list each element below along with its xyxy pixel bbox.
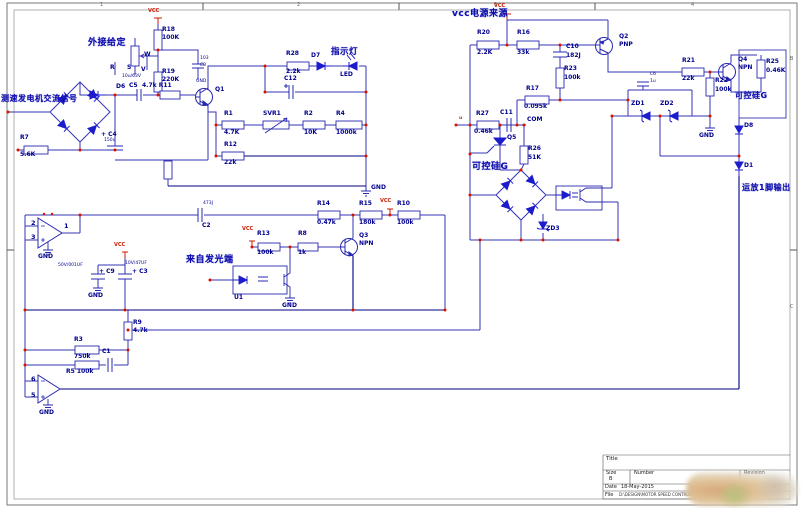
label-vcc-source: vcc电源来源	[452, 10, 508, 19]
ref-q2: Q2	[619, 34, 628, 40]
transistor-q3	[341, 238, 358, 256]
type-q4: NPN	[738, 65, 752, 71]
gnd-label: GND	[39, 410, 54, 416]
ref-r23: R23	[564, 66, 577, 72]
opamp1-pin-noninverting: 3	[31, 234, 36, 241]
val-r25: 0.46K	[766, 68, 785, 74]
titleblock-revision-label: Revision	[744, 471, 765, 476]
ref-d1: D1	[744, 163, 753, 169]
ref-c12: C12	[284, 76, 297, 82]
label-com: COM	[527, 117, 542, 123]
val-r8: 1k	[298, 250, 306, 256]
val-c8: 103	[200, 57, 209, 62]
val-r20: 2.2K	[477, 50, 492, 56]
ref-d7: D7	[311, 53, 320, 59]
ref-c2: C2	[202, 223, 211, 229]
titleblock-date-label: Date	[605, 485, 617, 490]
titleblock-title-label: Title	[606, 457, 618, 463]
diode-d1	[735, 162, 743, 170]
titleblock-file-value: D:\DESIGN\MOTOR SPEED CONTROL.SCH	[619, 493, 701, 497]
cap-c10	[553, 52, 567, 57]
type-q2: PNP	[619, 42, 633, 48]
resistor-r4	[336, 121, 362, 129]
val-r10: 100k	[397, 220, 414, 226]
ref-r5: R5 100k	[66, 369, 93, 375]
titleblock-of-label: of	[772, 485, 777, 490]
label-external-setting: 外接给定	[88, 39, 126, 48]
titleblock-sheet-label: Sheet	[744, 485, 758, 490]
pot-pin-s: S	[127, 65, 131, 71]
val-r16: 33k	[517, 50, 529, 56]
ref-r22: R22	[715, 78, 728, 84]
ref-r13: R13	[257, 231, 270, 237]
opamp1-pin-inverting: 2	[31, 220, 36, 227]
opamp2-pin-noninverting: 5	[31, 392, 36, 399]
vcc-flag: VCC	[242, 227, 253, 232]
ref-c9: + C9	[99, 269, 115, 275]
schematic-sheet: 测速发电机交流信号 外接给定 指示灯 vcc电源来源 来自发光端 可控硅G 可控…	[0, 0, 804, 508]
cap-c2	[198, 208, 202, 222]
ref-r25: R25	[766, 59, 779, 65]
pot-pin-v: V	[141, 67, 146, 73]
val-r13: 100k	[257, 250, 274, 256]
ref-r16: R16	[517, 30, 530, 36]
opamp-1	[38, 218, 62, 248]
ref-q3: Q3	[359, 233, 368, 239]
ref-c8: C8	[200, 64, 206, 69]
ref-q1: Q1	[215, 87, 224, 93]
titleblock-drawn-label: Drawn By	[744, 493, 768, 498]
val-r12: 22k	[224, 160, 236, 166]
resistor-r2	[303, 121, 325, 129]
vcc-flag: VCC	[148, 9, 159, 14]
titleblock-number-label: Number	[634, 471, 654, 476]
resistor-r1	[222, 121, 244, 129]
ref-led: LED	[340, 72, 353, 78]
ref-c1: C1	[102, 349, 111, 355]
resistor-r25	[757, 60, 765, 78]
zone-top-4: 4	[691, 3, 694, 8]
label-tacho-signal: 测速发电机交流信号	[1, 95, 78, 103]
opamp2-pin-inverting: 6	[31, 376, 36, 383]
resistor-r23	[556, 68, 564, 88]
gnd-label: GND	[196, 80, 206, 85]
val-r15: 180k	[359, 220, 376, 226]
val-r17: 0.095k	[524, 104, 547, 110]
cap-c1	[108, 358, 112, 372]
ref-u1: U1	[234, 295, 243, 301]
cap-c3	[118, 274, 132, 279]
ref-r14: R14	[317, 201, 330, 207]
ref-r8: R8	[298, 231, 307, 237]
zone-top-3: 3	[494, 3, 497, 8]
zone-top-2: 2	[297, 3, 300, 8]
titleblock-date-value: 18-May-2015	[621, 485, 654, 490]
opamp-2	[38, 375, 60, 403]
transistor-q1	[196, 88, 213, 106]
resistor-r6	[164, 161, 172, 179]
resistor-r18	[154, 30, 162, 50]
ref-r7: R7	[20, 135, 29, 141]
gnd-label: GND	[699, 133, 714, 139]
titleblock-file-label: File	[605, 493, 613, 498]
label-scr-gate-left: 可控硅G	[472, 163, 508, 172]
ref-c6: C6	[650, 73, 656, 78]
resistor-r16	[517, 41, 539, 49]
zener-zd2	[668, 110, 678, 122]
transistors	[196, 38, 736, 257]
bridge-rectifier-2	[496, 170, 546, 220]
opamp1-pin-output: 1	[64, 223, 69, 230]
val-r18: 100K	[162, 35, 179, 41]
ref-svr1: SVR1	[263, 111, 281, 117]
potentiometer-rp	[131, 46, 139, 66]
resistor-r11	[160, 91, 180, 99]
ref-r26: R26	[528, 146, 541, 152]
ref-r18: R18	[162, 27, 175, 33]
val-r23: 100k	[564, 75, 581, 81]
ref-r21: R21	[682, 58, 695, 64]
val-r22: 100k	[715, 87, 732, 93]
zener-zd1	[640, 110, 650, 122]
gnd-label: GND	[282, 303, 297, 309]
ref-c10: C10	[566, 44, 579, 50]
transistor-q2	[596, 38, 613, 55]
cap-c6	[637, 82, 649, 86]
val-r2: 10K	[304, 130, 317, 136]
scr-q5	[487, 138, 506, 153]
resistor-r26	[520, 146, 528, 164]
ref-r19: R19	[162, 69, 175, 75]
junction-dots	[7, 44, 741, 367]
ref-r2: R2	[304, 111, 313, 117]
val-c5: 10u/63V	[122, 75, 141, 80]
titleblock-size-value: B	[609, 477, 612, 482]
val-c10: 182J	[566, 53, 581, 59]
val-r4: 1000k	[336, 130, 357, 136]
diode-d6	[88, 91, 106, 99]
val-r3: 750k	[74, 354, 91, 360]
val-c6: 1u	[650, 80, 656, 85]
zone-right-c: C	[790, 305, 794, 310]
val-r1: 4.7K	[224, 130, 239, 136]
ref-r27: R27	[476, 111, 489, 117]
val-r7: 5.6K	[20, 152, 35, 158]
resistor-r20	[477, 41, 499, 49]
label-opamp-output: 运放1脚输出	[742, 184, 791, 192]
ref-d6: D6	[116, 84, 125, 90]
cap-c5	[137, 89, 141, 101]
diode-d8	[735, 126, 743, 134]
ref-r1: R1	[224, 111, 233, 117]
ref-r17: R17	[526, 86, 539, 92]
ref-zd1: ZD1	[631, 101, 645, 107]
pot-pin-w: W	[144, 52, 151, 58]
optocoupler-u2	[556, 186, 602, 210]
label-indicator-lamp: 指示灯	[331, 48, 358, 57]
wires	[8, 20, 761, 405]
ref-c11: C11	[500, 110, 513, 116]
label-u-node: u	[459, 117, 462, 122]
ref-r3: R3	[74, 337, 83, 343]
vcc-flag: VCC	[114, 243, 125, 248]
ref-r4: R4	[336, 111, 345, 117]
ref-c3: + C3	[132, 269, 148, 275]
diodes	[88, 54, 743, 231]
pot-pin-r: R	[110, 65, 115, 71]
ref-q5: Q5	[507, 135, 516, 141]
ref-r20: R20	[477, 30, 490, 36]
resistor-r15	[360, 211, 382, 219]
ref-r12: R12	[224, 142, 237, 148]
val-c4: 150u	[104, 139, 115, 144]
zone-right-b: B	[790, 57, 793, 62]
ref-r10: R10	[397, 201, 410, 207]
ref-zd3: ZD3	[546, 226, 560, 232]
val-r26: 51K	[528, 155, 541, 161]
val-r9: 4.7k	[133, 328, 148, 334]
vcc-flag: VCC	[380, 199, 391, 204]
resistor-r22	[706, 78, 714, 96]
val-r21: 22k	[682, 76, 694, 82]
ref-zd2: ZD2	[660, 101, 674, 107]
val-r27: 0.46k	[474, 129, 493, 135]
ref-r15: R15	[359, 201, 372, 207]
type-q3: NPN	[359, 241, 373, 247]
optocoupler-u1	[233, 266, 290, 294]
zone-top-1: 1	[100, 3, 103, 8]
label-from-opto: 来自发光端	[186, 256, 234, 265]
val-c3: 10V/47UF	[125, 262, 147, 267]
gnd-label: GND	[371, 185, 386, 191]
val-r14: 0.47k	[317, 220, 336, 226]
ref-r9: R9	[133, 320, 142, 326]
label-scr-gate-right: 可控硅G	[735, 92, 768, 100]
val-c9: 50V/001UF	[58, 264, 83, 269]
ref-r28: R28	[286, 51, 299, 57]
gnd-label: GND	[88, 293, 103, 299]
ref-r11: 4.7k R11	[142, 83, 172, 89]
resistor-r14	[318, 211, 340, 219]
resistor-r10	[398, 211, 420, 219]
ref-q4: Q4	[738, 57, 747, 63]
diode-d7	[317, 62, 331, 70]
ref-c5: C5	[129, 83, 138, 89]
val-c2: 473J	[203, 202, 213, 207]
ref-d8: D8	[744, 123, 753, 129]
gnd-label: GND	[38, 254, 53, 260]
